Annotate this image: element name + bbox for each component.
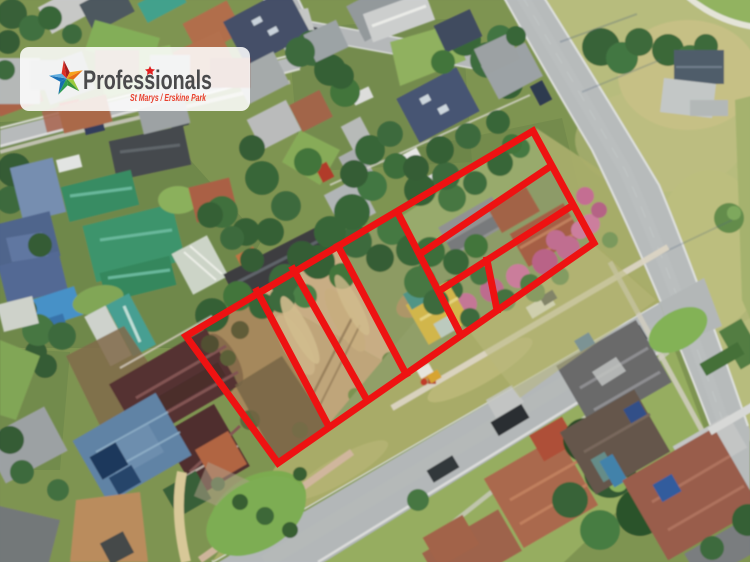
svg-text:St Marys / Erskine Park: St Marys / Erskine Park bbox=[130, 93, 206, 104]
